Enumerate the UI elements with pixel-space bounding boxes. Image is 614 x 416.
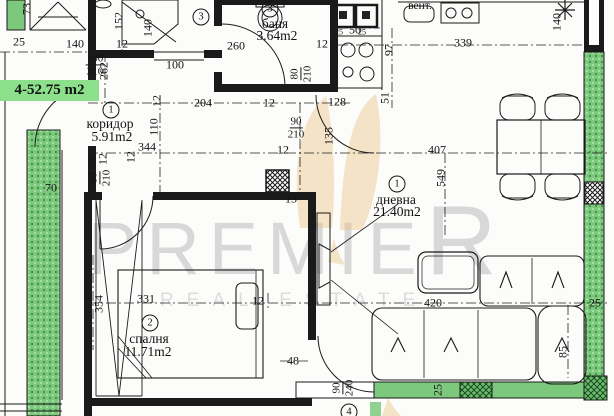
dimension-label: 12 <box>263 96 275 111</box>
dimension-label: 12 <box>96 153 111 165</box>
dimension-label: 25 <box>431 384 446 396</box>
dimension-label: 12 <box>277 143 289 158</box>
dimension-label: 12 <box>252 294 264 309</box>
dimension-label: 420 <box>424 296 442 311</box>
furniture-coffee-table <box>418 252 478 293</box>
dimension-label: 12 <box>316 37 328 52</box>
dimension-label: 135 <box>322 127 337 145</box>
door-size-label: 90240 <box>330 380 355 397</box>
dimension-label: 260 <box>227 39 245 54</box>
dimension-label: 48 <box>287 354 299 369</box>
column-hatch <box>266 170 289 192</box>
dimension-label: 128 <box>328 95 346 110</box>
dimension-label: 407 <box>428 143 446 158</box>
vent-label: вент. <box>408 0 432 12</box>
dimension-label: 12 <box>124 151 139 163</box>
dimension-label: 140 <box>141 19 156 37</box>
dimension-label: 51 <box>378 92 393 104</box>
stairs <box>30 0 86 30</box>
dimension-label: 12 <box>150 95 165 107</box>
dimension-label: 344 <box>138 140 156 155</box>
dimension-label: 73 <box>20 3 35 15</box>
door-size-label: 80210 <box>87 170 112 187</box>
dimension-label: 110 <box>147 118 162 136</box>
dimension-label: 204 <box>194 96 212 111</box>
furniture-sofa <box>372 256 586 384</box>
dimension-label: 152 <box>112 12 127 30</box>
furniture-dining-table <box>497 94 585 200</box>
dimension-label: 12 <box>116 37 128 52</box>
dimension-label: 140 <box>550 13 565 31</box>
dimension-label: 85 <box>556 346 571 358</box>
dimension-label: 339 <box>454 36 472 51</box>
room-area-living: 21.40m2 <box>373 204 421 220</box>
apartment-area-label: 4-52.75 m2 <box>0 80 99 101</box>
door-size-label: 90210 <box>288 115 305 140</box>
furniture-bed <box>118 270 263 378</box>
room-marker-bathroom: 3 <box>262 1 279 18</box>
room-area-corridor: 5.91m2 <box>92 129 133 145</box>
door-size-label: 80210 <box>288 66 313 83</box>
room-marker-bedroom: 2 <box>142 315 159 332</box>
door-size-label: 100210 <box>86 52 105 77</box>
dimension-label: 13 <box>285 192 297 207</box>
dimension-label: 140 <box>66 37 84 52</box>
dimension-label: 354 <box>92 295 107 313</box>
room-marker-balcony: 4 <box>341 404 358 416</box>
dimension-label: 331 <box>137 292 155 307</box>
room-marker-shower: 3 <box>193 9 210 26</box>
dimension-label: 25 <box>335 28 343 37</box>
dimension-label: 549 <box>434 169 449 187</box>
room-marker-living: 1 <box>389 176 406 193</box>
room-area-bathroom: 3.64m2 <box>257 28 298 44</box>
dimension-label: 100 <box>166 58 184 73</box>
dimension-label: 25 <box>589 296 601 311</box>
dimension-label: 97 <box>382 44 397 56</box>
room-area-bedroom: 11.71m2 <box>124 344 171 360</box>
floor-plan: PREMIER REAL ESTATE <box>0 0 614 416</box>
dimension-label: 25 <box>358 28 366 37</box>
dimension-label: 25 <box>13 35 25 50</box>
dimension-label: 70 <box>45 181 57 196</box>
